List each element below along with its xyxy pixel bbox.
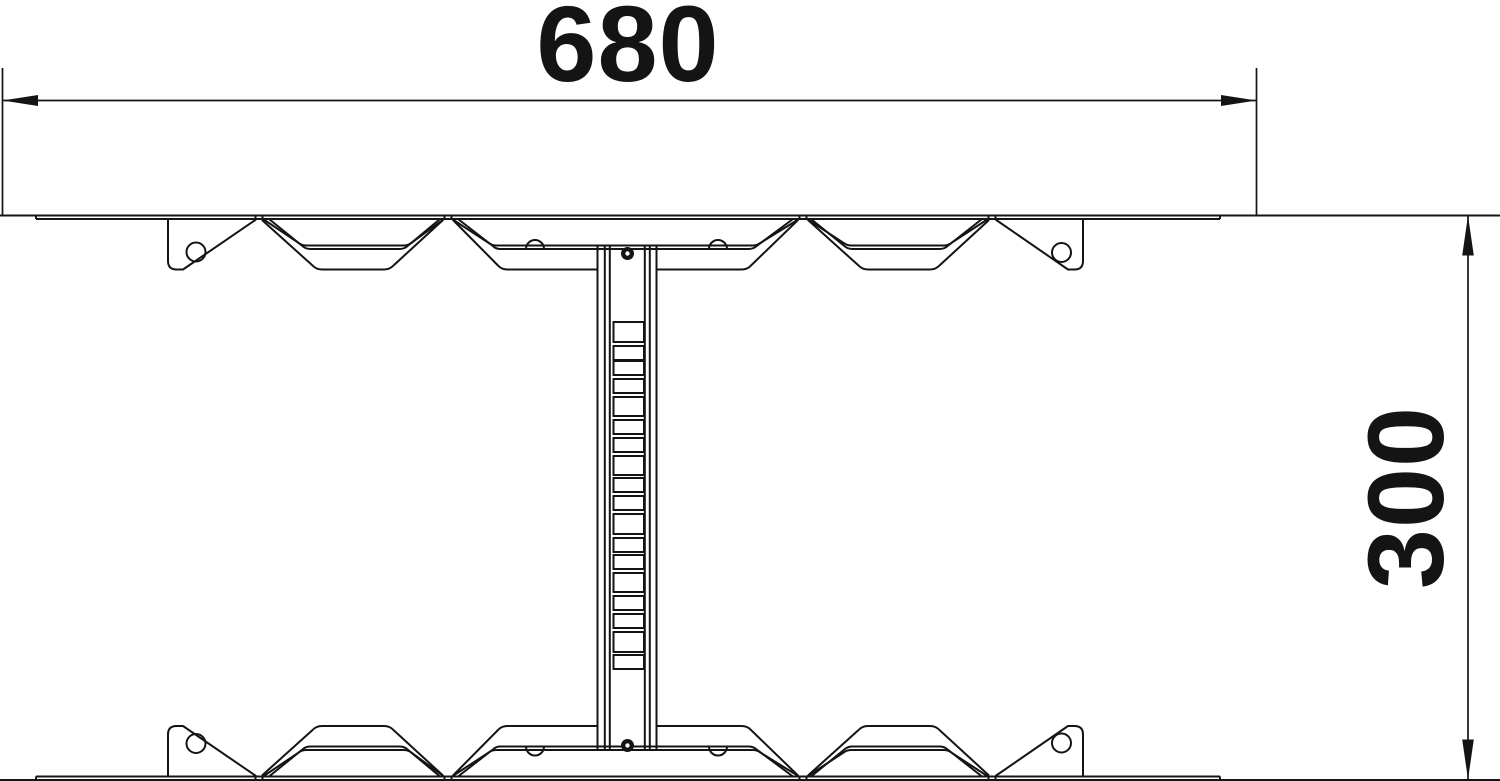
rung-slot — [614, 496, 645, 510]
arrowhead-left-icon — [3, 95, 39, 106]
bracket-hole — [187, 243, 206, 262]
width-dimension-label: 680 — [536, 0, 719, 104]
arrowhead-up-icon — [1462, 216, 1474, 256]
rung-slot — [614, 361, 645, 375]
rung-slot — [614, 438, 645, 452]
arrowhead-down-icon — [1462, 740, 1474, 780]
bracket-hole — [1052, 243, 1071, 262]
rung-slot — [614, 322, 645, 342]
rung-slot — [614, 614, 645, 628]
rung-slot — [614, 514, 645, 534]
connector-bottom-half — [0, 726, 1500, 780]
valley-right-fold-outer — [807, 219, 988, 246]
rung-slot — [614, 596, 645, 610]
height-dimension-label: 300 — [1345, 406, 1466, 589]
technical-drawing: 680 300 — [0, 0, 1500, 781]
valley-left-fold-outer — [263, 219, 444, 246]
drawing-canvas: 680 300 — [0, 0, 1500, 781]
center-rung — [598, 246, 657, 753]
arrowhead-right-icon — [1221, 95, 1257, 106]
rung-slot-column — [614, 322, 645, 669]
rung-slot — [614, 538, 645, 552]
rung-slot — [614, 555, 645, 569]
rung-slot — [614, 478, 645, 492]
dimension-annotations — [3, 68, 1474, 780]
connector-top-half — [0, 216, 1500, 270]
bolt-center-icon — [625, 743, 629, 747]
rung-slot — [614, 573, 645, 592]
rung-slot — [614, 655, 645, 669]
rung-slot — [614, 397, 645, 416]
rung-slot — [614, 632, 645, 652]
rung-slot — [614, 456, 645, 475]
rung-slot — [614, 379, 645, 393]
bolt-center-icon — [625, 251, 629, 255]
center-fold-outer — [452, 219, 799, 246]
left-bracket — [168, 219, 256, 270]
rung-slot — [614, 346, 645, 360]
right-bracket — [996, 219, 1084, 270]
rung-slot — [614, 420, 645, 434]
